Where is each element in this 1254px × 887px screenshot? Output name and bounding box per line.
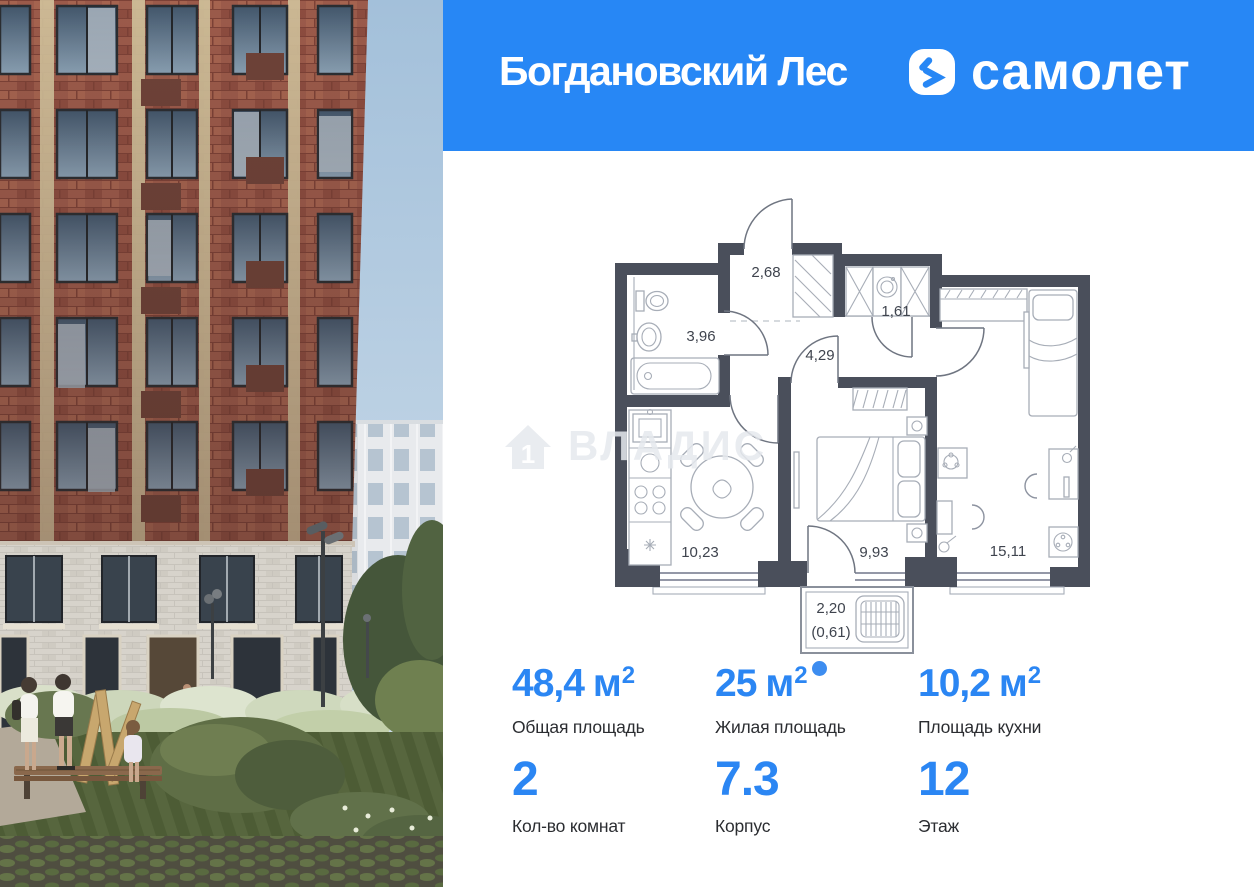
- stat-building-value: 7.3: [715, 756, 779, 804]
- stat-floor: 12 Этаж: [918, 756, 969, 837]
- stat-rooms-label: Кол-во комнат: [512, 816, 625, 837]
- stat-total-area-value: 48,4м2: [512, 664, 645, 703]
- stat-kitchen-area-value: 10,2м2: [918, 664, 1041, 703]
- samolet-logo-icon: [909, 49, 955, 95]
- room-area-balcony: 2,20: [816, 600, 845, 617]
- stat-living-area-value: 25м2: [715, 664, 846, 703]
- hallway-cabinet: [793, 255, 833, 317]
- balcony: [801, 587, 913, 653]
- room-area-hallway: 2,68: [751, 264, 780, 281]
- stat-floor-label: Этаж: [918, 816, 969, 837]
- living-room-furniture: [937, 289, 1078, 557]
- stat-rooms: 2 Кол-во комнат: [512, 756, 625, 837]
- brand-name: самолет: [971, 46, 1191, 98]
- room-area-balcony-coefficient: (0,61): [811, 624, 850, 641]
- kitchen-fixtures: [629, 410, 766, 566]
- room-area-bathroom: 3,96: [686, 328, 715, 345]
- watermark-house-icon: 1: [501, 421, 555, 471]
- stat-kitchen-area: 10,2м2 Площадь кухни: [918, 664, 1041, 738]
- watermark-house-number: 1: [521, 439, 535, 469]
- stat-total-area-label: Общая площадь: [512, 717, 645, 738]
- room-area-corridor: 4,29: [805, 347, 834, 364]
- planted-rows: [0, 836, 443, 887]
- header-banner: Богдановский Лес самолет: [443, 0, 1254, 151]
- brand-logo: самолет: [909, 46, 1191, 98]
- room-area-kitchen: 10,23: [681, 544, 719, 561]
- listing-card: Богдановский Лес самолет 1 ВЛАДИС: [0, 0, 1254, 887]
- room-area-wardrobe: 1,61: [881, 303, 910, 320]
- bedroom-furniture: [794, 388, 927, 542]
- stat-building: 7.3 Корпус: [715, 756, 779, 837]
- building-photo-art: [0, 0, 443, 887]
- brick-tower: [0, 0, 368, 548]
- plan-furniture: [629, 255, 1078, 653]
- floor-plan: 2,68 3,96 4,29 1,61 10,23 9,93 15,11 2,2…: [610, 185, 1095, 660]
- stat-floor-value: 12: [918, 756, 969, 804]
- room-area-bedroom: 9,93: [859, 544, 888, 561]
- stat-total-area: 48,4м2 Общая площадь: [512, 664, 645, 738]
- room-area-living: 15,11: [990, 543, 1026, 560]
- stat-building-label: Корпус: [715, 816, 779, 837]
- project-name: Богдановский Лес: [499, 48, 847, 95]
- building-photo: [0, 0, 443, 887]
- stat-living-area: 25м2 Жилая площадь: [715, 664, 846, 738]
- stat-kitchen-area-label: Площадь кухни: [918, 717, 1041, 738]
- stat-rooms-value: 2: [512, 756, 625, 804]
- stat-living-area-label: Жилая площадь: [715, 717, 846, 738]
